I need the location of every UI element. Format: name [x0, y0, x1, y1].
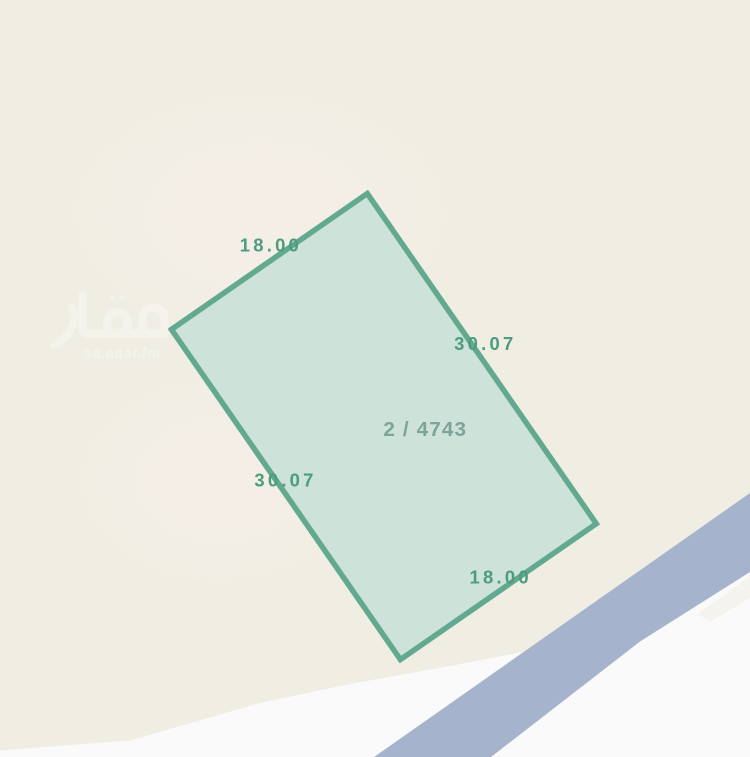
svg-text:sa.aqar.fm: sa.aqar.fm	[84, 346, 161, 362]
svg-text:18.00: 18.00	[470, 567, 532, 588]
svg-text:30.07: 30.07	[254, 469, 316, 490]
svg-text:30.07: 30.07	[454, 333, 516, 354]
svg-text:18.00: 18.00	[240, 235, 302, 256]
svg-text:2 / 4743: 2 / 4743	[383, 418, 467, 441]
